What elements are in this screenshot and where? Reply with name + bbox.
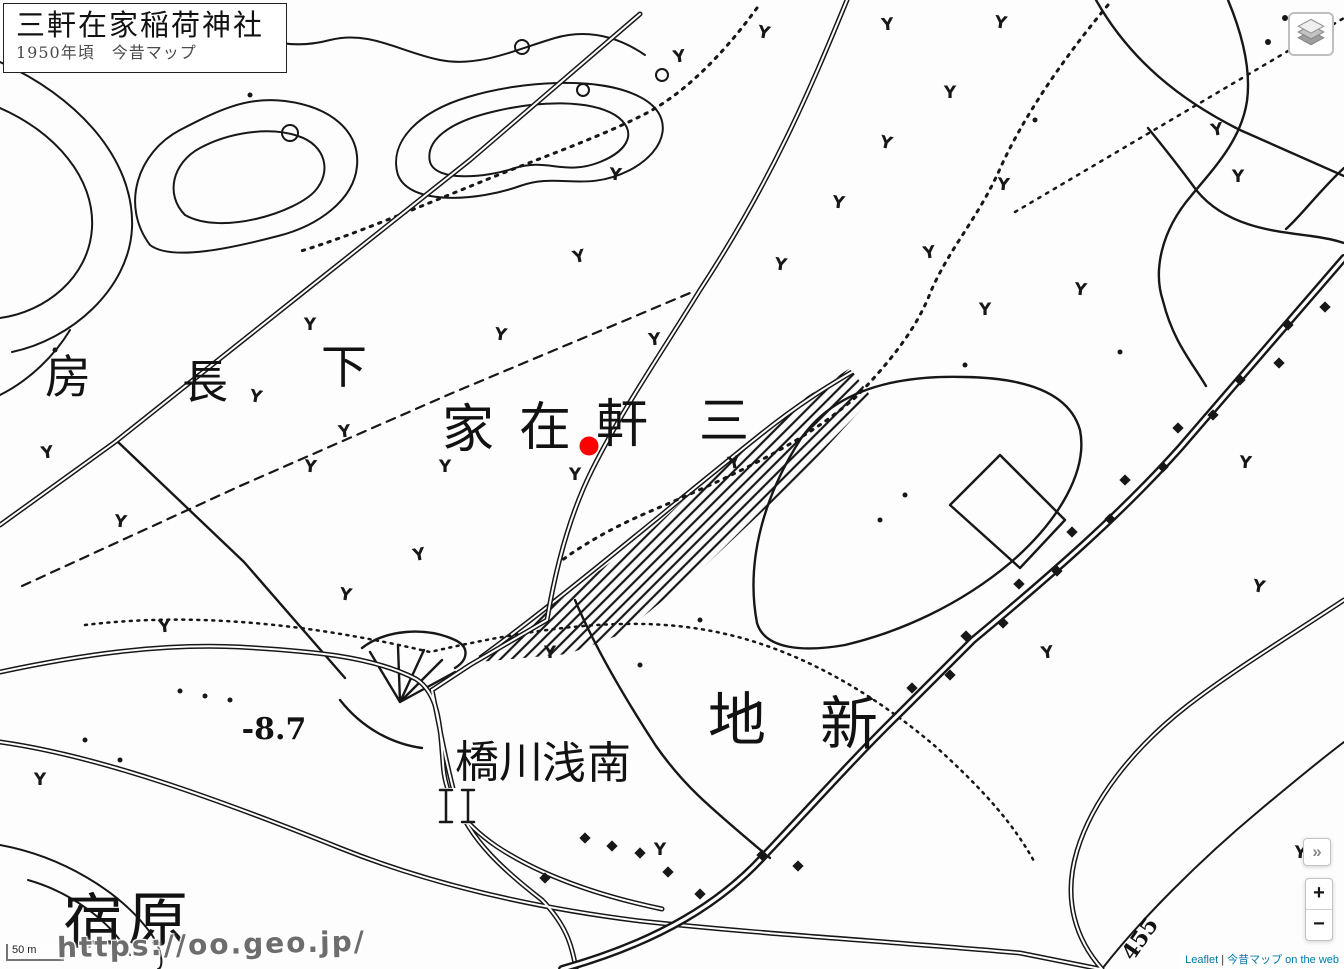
building-mark [694,888,705,899]
mulberry-field-symbol: Y [112,511,128,532]
mulberry-field-symbol: Y [336,421,352,442]
mulberry-field-symbol: Y [568,465,582,485]
mulberry-field-symbol: Y [1250,576,1267,598]
mulberry-field-symbol: Y [543,643,557,663]
mulberry-field-symbol: Y [570,246,588,268]
map-label: 長 [182,355,228,409]
map-canvas[interactable]: YYYYYYYYYYYYYYYYYYYYYYYYYYYYYYYYYYYYY 家在… [0,0,1344,969]
zoom-control: + − [1305,878,1333,941]
map-label: 455 [1116,913,1164,966]
map-label: 家 [442,400,494,460]
chevron-right-double-icon: » [1312,842,1321,862]
mulberry-field-symbol: Y [302,456,318,477]
layers-icon [1296,17,1326,52]
mulberry-field-symbol: Y [671,46,688,68]
mulberry-field-symbol: Y [1072,279,1088,300]
attribution-separator: | [1218,954,1227,966]
mulberry-field-symbol: Y [39,442,56,464]
map-label: 下 [321,340,367,394]
mulberry-field-symbol: Y [992,12,1009,34]
mulberry-field-symbol: Y [1237,452,1253,473]
mulberry-field-symbol: Y [877,132,895,154]
mulberry-field-symbol: Y [647,329,663,350]
mulberry-field-symbol: Y [157,616,173,637]
mulberry-field-symbol: Y [607,164,623,185]
building-mark [1119,474,1130,485]
map-label: -8.7 [242,712,307,747]
map-label: 浅 [542,738,586,789]
attribution-source-link[interactable]: 今昔マップ on the web [1227,954,1339,966]
mulberry-field-symbol: Y [1231,167,1245,187]
mulberry-field-symbol: Y [303,315,317,335]
attribution-bar: Leaflet | 今昔マップ on the web [1180,952,1344,969]
mulberry-symbols-layer: YYYYYYYYYYYYYYYYYYYYYYYYYYYYYYYYYYYYY [33,12,1308,863]
mulberry-field-symbol: Y [492,324,509,346]
poi-marker[interactable] [580,437,599,456]
mulberry-field-symbol: Y [410,544,427,566]
layers-control-button[interactable] [1288,12,1334,56]
mulberry-field-symbol: Y [247,386,264,408]
mulberry-field-symbol: Y [995,174,1011,195]
map-label: 地 [708,686,766,754]
building-mark [606,840,617,851]
mulberry-field-symbol: Y [943,83,957,103]
building-mark [1319,301,1330,312]
dotted-boundary-layer [22,5,1344,863]
map-application: YYYYYYYYYYYYYYYYYYYYYYYYYYYYYYYYYYYYY 家在… [0,0,1344,969]
page-title: 三軒在家稲荷神社 [16,7,276,43]
watermark-url: https://oo.geo.jp/ [57,925,367,964]
mulberry-field-symbol: Y [337,584,354,606]
scale-bar: 50 m [6,944,64,961]
building-mark [1013,578,1024,589]
mulberry-field-symbol: Y [755,22,772,44]
mulberry-field-symbol: Y [880,14,896,35]
roads-layer [0,0,1344,969]
buildings-layer [53,15,1331,900]
mulberry-field-symbol: Y [1039,642,1056,664]
building-mark [1172,422,1183,433]
map-label: 房 [45,350,91,404]
mulberry-field-symbol: Y [921,242,938,264]
map-label: 橋 [455,737,499,788]
building-mark [792,860,803,871]
building-mark [634,847,645,858]
building-mark [1273,357,1284,368]
map-label: 軒 [596,395,648,455]
page-subtitle: 1950年頃 今昔マップ [16,43,276,62]
mulberry-field-symbol: Y [653,840,667,860]
map-title-box: 三軒在家稲荷神社 1950年頃 今昔マップ [3,3,287,73]
map-label: 三 [699,392,749,450]
map-label: 新 [820,690,878,758]
map-label: 南 [587,738,631,789]
attribution-leaflet-link[interactable]: Leaflet [1185,954,1218,966]
map-labels-layer: 家在軒三房長下地新橋川浅南宿原-8.7455 [45,340,1164,965]
building-mark [579,832,590,843]
building-mark [1066,526,1077,537]
map-label: 在 [519,398,571,458]
zoom-in-button[interactable]: + [1306,879,1332,909]
mulberry-field-symbol: Y [438,457,452,477]
sidebar-expand-button[interactable]: » [1303,838,1331,866]
mulberry-field-symbol: Y [830,192,846,213]
mulberry-field-symbol: Y [33,770,47,790]
zoom-out-button[interactable]: − [1306,909,1332,940]
mulberry-field-symbol: Y [978,300,992,320]
mulberry-field-symbol: Y [772,254,789,276]
map-label: 川 [499,737,543,788]
building-mark [662,866,673,877]
